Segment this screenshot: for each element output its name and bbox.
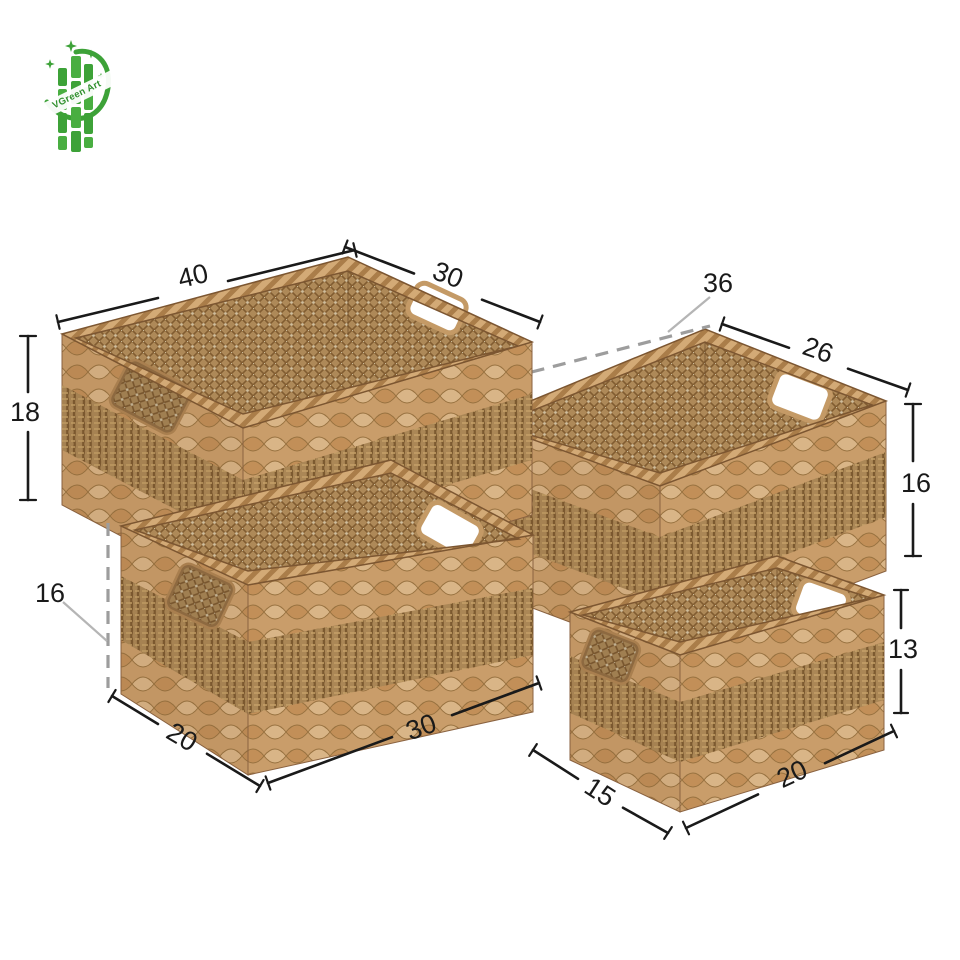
dim-line-medium-height: 16 — [901, 404, 931, 556]
dim-line-mini-height: 13 — [888, 590, 918, 713]
dim-line-small-height: 16 — [35, 523, 108, 688]
baskets-dimension-diagram: 40 30 18 36 26 16 16 — [0, 0, 960, 960]
dim-label-small-height: 16 — [35, 578, 65, 608]
product-dimension-image: 40 30 18 36 26 16 16 — [0, 0, 960, 960]
brand-logo: VGreen Art — [35, 40, 122, 152]
dim-line-large-height: 18 — [10, 336, 40, 500]
dim-label-large-height: 18 — [10, 397, 40, 427]
dim-label-medium-length: 36 — [703, 268, 733, 298]
dim-label-mini-height: 13 — [888, 634, 918, 664]
dim-label-large-length: 40 — [175, 258, 211, 294]
dim-label-medium-height: 16 — [901, 468, 931, 498]
dim-label-medium-width: 26 — [799, 331, 837, 369]
